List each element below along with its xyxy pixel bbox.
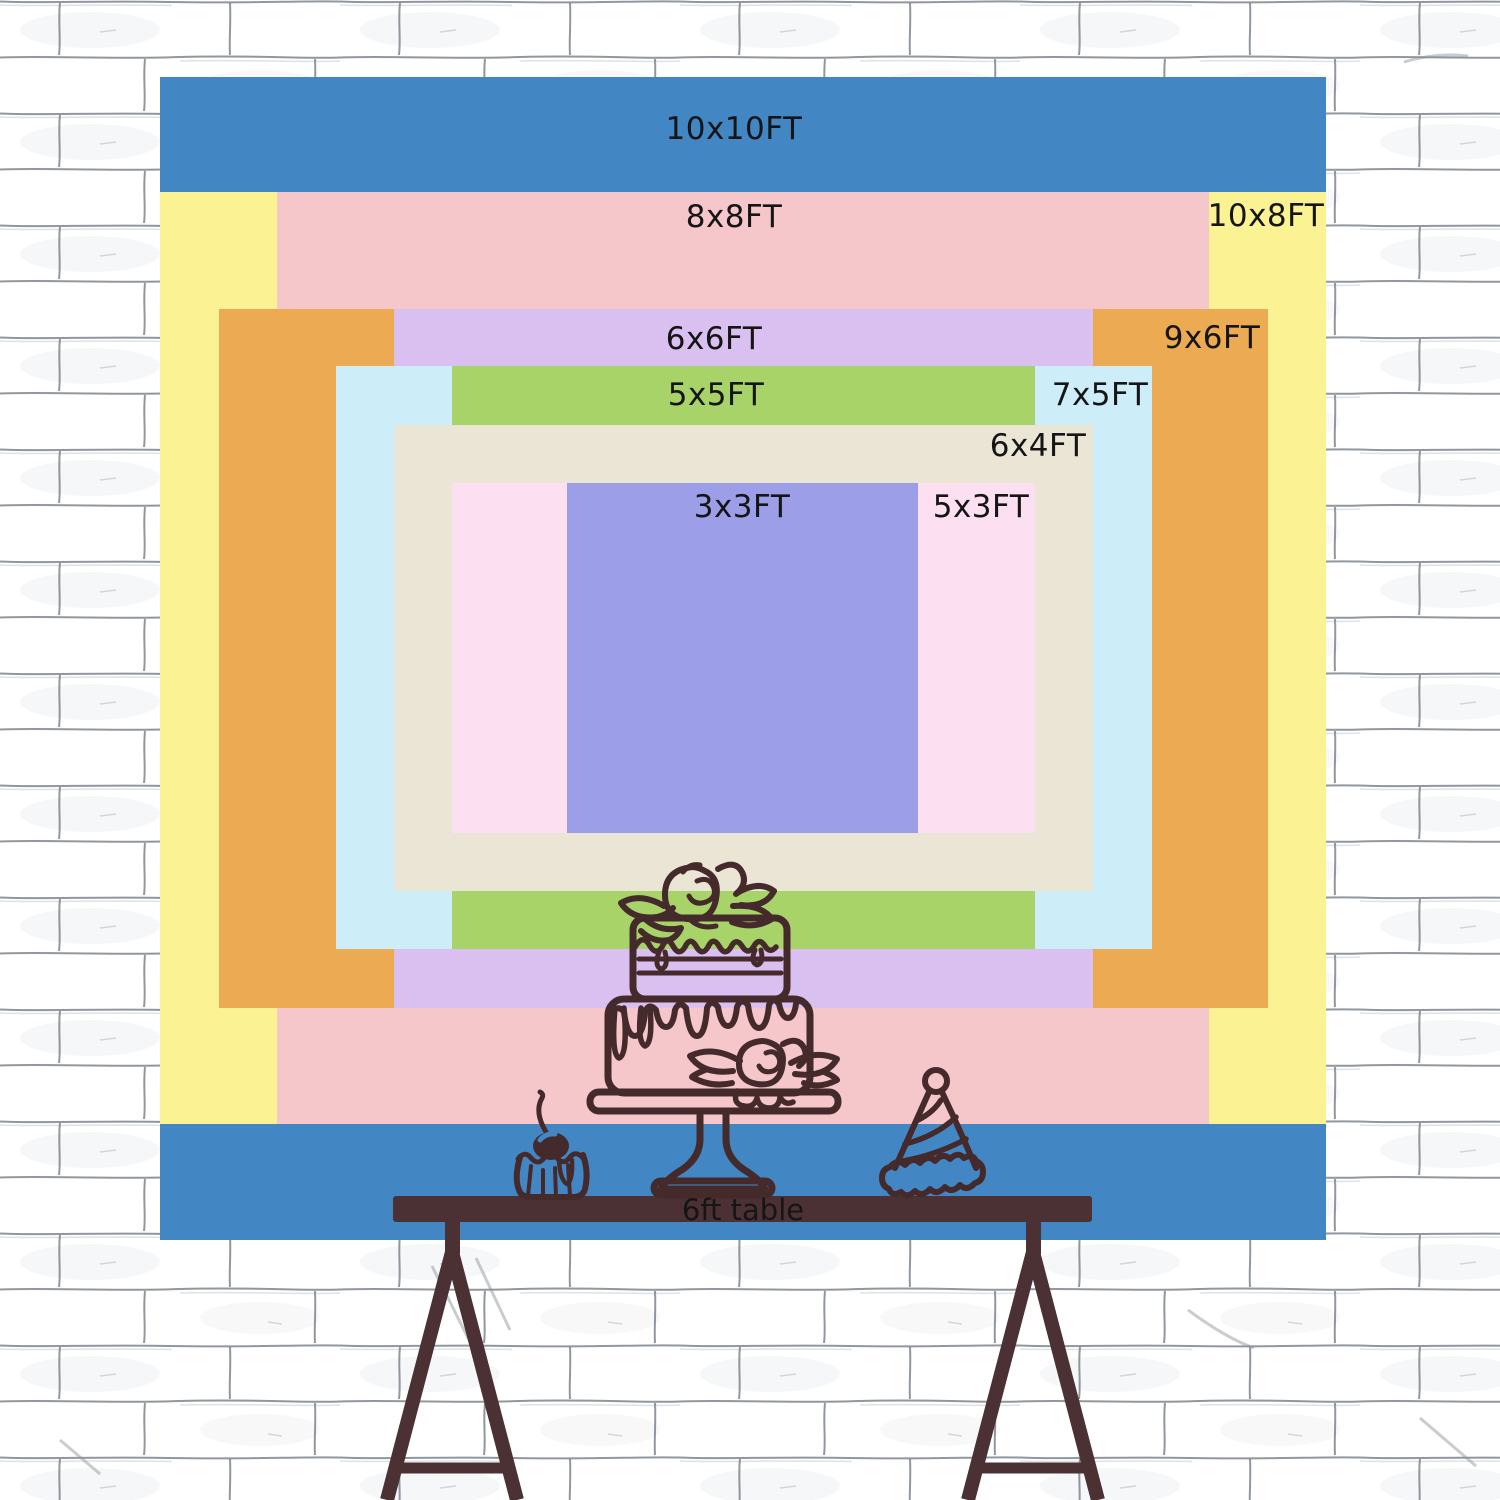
size-label-5x3: 5x3FT bbox=[933, 489, 1030, 525]
table-leg-post bbox=[1026, 1220, 1041, 1254]
size-label-7x5: 7x5FT bbox=[1052, 377, 1149, 413]
flower-garnish bbox=[690, 1041, 837, 1108]
cake-stand-illustration bbox=[590, 1092, 838, 1195]
size-label-5x5: 5x5FT bbox=[668, 377, 765, 413]
size-label-9x6: 9x6FT bbox=[1164, 320, 1261, 356]
tiered-cake-illustration bbox=[590, 865, 838, 1195]
rose-topper bbox=[621, 865, 774, 941]
table-size-label: 6ft table bbox=[682, 1193, 804, 1227]
hat-scalloped-brim bbox=[882, 1155, 983, 1196]
cupcake-illustration bbox=[517, 1092, 587, 1197]
backdrop-size-chart-image: 10x10FT10x8FT8x8FT9x6FT6x6FT7x5FT5x5FT6x… bbox=[0, 0, 1500, 1500]
table-and-cake-illustration bbox=[340, 840, 1120, 1500]
size-label-6x6: 6x6FT bbox=[666, 321, 763, 357]
size-label-8x8: 8x8FT bbox=[686, 199, 783, 235]
size-label-6x4: 6x4FT bbox=[990, 428, 1087, 464]
size-label-10x8: 10x8FT bbox=[1208, 198, 1325, 234]
size-label-10x10: 10x10FT bbox=[666, 111, 803, 147]
table-leg-post bbox=[445, 1220, 460, 1254]
trestle-table-illustration bbox=[387, 1196, 1098, 1500]
party-hat-illustration bbox=[882, 1070, 983, 1195]
size-label-3x3: 3x3FT bbox=[694, 489, 791, 525]
